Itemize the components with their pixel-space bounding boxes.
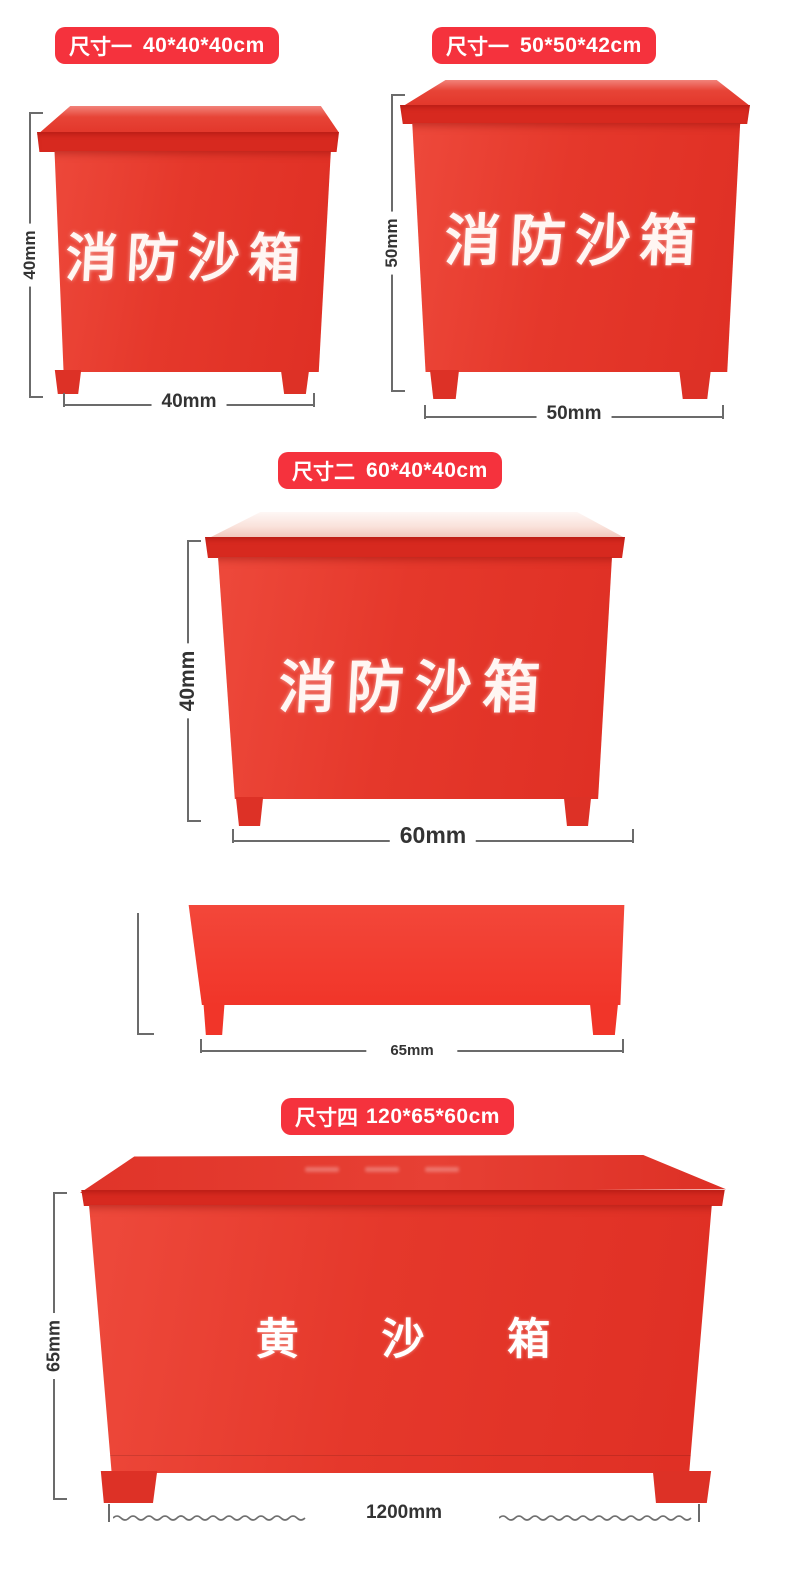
box120-front-text: 黄 沙 箱 — [80, 1305, 726, 1367]
box60-width-dimension: 60mm — [232, 828, 634, 844]
size-badge-1-label: 尺寸一 — [69, 31, 132, 61]
box50-lid-top — [400, 80, 750, 108]
box120-lid-top — [80, 1155, 726, 1193]
dim-line — [137, 913, 139, 1035]
dim-tick — [392, 94, 405, 96]
dim-tick — [30, 112, 43, 114]
box40-width-dimension: 40mm — [63, 392, 315, 408]
product-size-infographic: 尺寸一 40*40*40cm 尺寸一 50*50*42cm 尺寸二 60*40*… — [0, 0, 800, 1572]
dim-tick — [188, 540, 201, 542]
box50-lid-edge — [400, 105, 750, 124]
dim-tick — [392, 390, 405, 392]
box60-height-dimension: 40mm — [180, 540, 200, 822]
box60-right-foot — [562, 797, 593, 826]
box120-width-label: 1200mm — [356, 1502, 452, 1524]
faint-mark — [365, 1167, 399, 1172]
box120-lid-faint-print — [305, 1167, 459, 1172]
box50-height-label: 50mm — [380, 211, 404, 274]
box120-height-label: 65mm — [42, 1313, 67, 1379]
size-badge-4: 尺寸四 120*65*60cm — [281, 1098, 514, 1135]
box40-lid-edge — [37, 132, 339, 152]
size-badge-1: 尺寸一 40*40*40cm — [55, 27, 279, 64]
box60-width-label: 60mm — [390, 822, 476, 849]
dim-tick — [54, 1498, 67, 1500]
box65-width-label: 65mm — [366, 1042, 457, 1059]
box60-left-foot — [234, 797, 265, 826]
box40-height-dimension: 40mm — [22, 112, 42, 398]
box120-left-foot — [99, 1471, 159, 1503]
size-badge-3-label: 尺寸二 — [292, 456, 355, 486]
box65-width-dimension: 65mm — [200, 1038, 624, 1054]
dim-tick — [722, 405, 724, 419]
size-badge-2: 尺寸一 50*50*42cm — [432, 27, 656, 64]
size-badge-1-dimensions: 40*40*40cm — [143, 34, 265, 58]
box40-front-text: 消防沙箱 — [35, 216, 341, 291]
dim-tick — [632, 829, 634, 843]
size-badge-2-dimensions: 50*50*42cm — [520, 34, 642, 58]
box120-right-foot — [651, 1471, 713, 1503]
box50-height-dimension: 50mm — [384, 94, 404, 392]
wavy-dim-line — [499, 1512, 695, 1522]
faint-mark — [425, 1167, 459, 1172]
dim-tick — [108, 1504, 110, 1522]
box60-lid-top — [205, 512, 625, 540]
size-badge-4-dimensions: 120*65*60cm — [366, 1105, 500, 1129]
dim-tick — [313, 393, 315, 407]
faint-mark — [305, 1167, 339, 1172]
box50-left-foot — [428, 370, 461, 399]
dim-tick — [188, 820, 201, 822]
box120-height-dimension: 65mm — [46, 1192, 66, 1500]
size-badge-2-label: 尺寸一 — [446, 31, 509, 61]
box50-width-dimension: 50mm — [424, 404, 724, 420]
box40-left-foot — [53, 370, 83, 394]
dim-tick — [30, 396, 43, 398]
box40-width-label: 40mm — [152, 391, 227, 413]
box65-right-foot — [588, 1003, 620, 1035]
dim-tick — [54, 1192, 67, 1194]
box60-front-text: 消防沙箱 — [203, 642, 627, 724]
dim-tick — [698, 1504, 700, 1522]
size-badge-3: 尺寸二 60*40*40cm — [278, 452, 502, 489]
box50-width-label: 50mm — [537, 403, 612, 425]
box50-front-text: 消防沙箱 — [398, 196, 752, 277]
panel-seam — [106, 1455, 694, 1456]
box65-front-face — [186, 905, 627, 1005]
box65-left-foot — [202, 1003, 226, 1035]
box60-height-label: 40mm — [174, 644, 202, 719]
box40-right-foot — [279, 370, 311, 394]
dim-tick — [622, 1039, 624, 1053]
box120-lid-edge — [80, 1190, 726, 1206]
size-badge-4-label: 尺寸四 — [295, 1102, 358, 1132]
box50-right-foot — [677, 370, 713, 399]
box65-height-dimension — [137, 913, 155, 1035]
box40-height-label: 40mm — [18, 223, 42, 286]
box60-lid-edge — [205, 537, 625, 558]
size-badge-3-dimensions: 60*40*40cm — [366, 459, 488, 483]
dim-tick — [137, 1033, 154, 1035]
wavy-dim-line — [113, 1512, 309, 1522]
box120-width-dimension: 1200mm — [108, 1500, 700, 1522]
box40-lid-top — [37, 106, 339, 135]
